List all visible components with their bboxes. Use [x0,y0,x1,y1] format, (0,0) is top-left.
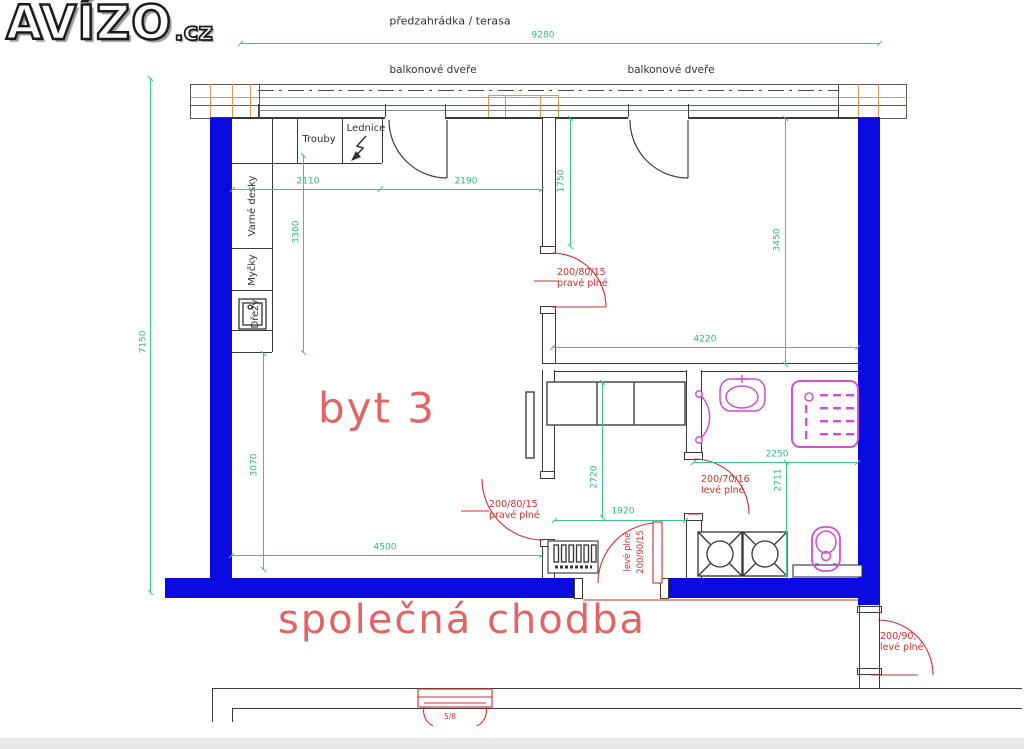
dim-line-hall-width [552,347,858,348]
toilet-icon [812,527,840,571]
dim-kitchen-left: 2110 [297,178,320,187]
corridor-passage-label: 5/8 [444,712,456,723]
dim-line-bath-width [693,462,858,463]
dim-hall-width: 4220 [694,336,717,345]
living-door-size: 200/80/15 [489,500,540,511]
apartment-label: byt 3 [318,384,436,433]
dim-kitchen-depth: 3300 [293,221,302,244]
dim-kitchen-right: 2190 [455,178,478,187]
radiator-narrow-symbol [526,392,534,458]
dim-right-wing: 3450 [774,229,783,252]
bed-symbol [547,382,685,425]
dim-bath-width: 2250 [766,451,789,460]
logo-suffix-text: .cz [174,19,213,47]
dim-line-right-wing [785,118,786,365]
dim-line-hall-entry [570,118,571,247]
balcony-door-swings [389,120,688,178]
dim-bedroom-width: 1920 [612,508,635,517]
living-door-type: pravé plné [489,511,540,522]
dim-overall-width: 9280 [532,32,555,41]
corridor-door-type: levé plné [880,643,924,654]
washbasin-icon [720,375,765,411]
dim-bath-depth: 2711 [775,469,784,492]
logo-text: AVÍZO [6,2,172,47]
entry-door-leaf [653,522,662,583]
towel-radiator-icon [696,391,710,443]
dim-line-bath-depth [786,462,787,577]
shower-tray-icon [792,381,858,447]
avizo-logo: AVÍZO .cz [6,2,213,47]
dim-overall-height: 7150 [140,331,149,354]
furniture-symbols [239,136,862,577]
bath-door-label: 200/70/16 levé plné [701,475,750,496]
fridge-power-icon [351,136,366,161]
hall-door-label: 200/80/15 pravé plné [557,268,608,289]
washing-machine-icon [743,532,787,576]
dim-line-bedroom-depth [602,382,603,518]
balcony-door-left-arc [389,120,447,178]
dim-line-overall-width [240,43,880,44]
corridor-door-size: 200/90, [880,632,924,643]
balcony-door-right-arc [630,120,688,178]
dim-line-bedroom-width [554,520,686,521]
dim-living-left: 3070 [251,454,260,477]
entry-door-type: levé plné [623,533,634,572]
dim-line-living-width [231,555,542,556]
living-door-label: 200/80/15 pravé plné [489,500,540,521]
dim-line-kitchen [232,189,542,190]
dim-hall-entry: 1750 [558,170,567,193]
dim-line-overall-height [150,78,151,593]
bath-door-size: 200/70/16 [701,475,750,486]
door-swing-annotations [418,253,933,726]
dim-bedroom-depth: 2720 [591,466,600,489]
corridor-door-label: 200/90, levé plné [880,632,924,653]
dim-living-width: 4500 [374,544,397,553]
washing-machine-icon [698,532,742,576]
entry-door-size: 200/90/15 [636,530,647,574]
hall-door-size: 200/80/15 [557,268,608,279]
dim-line-living-left [263,353,264,570]
floor-plan-page: AVÍZO .cz předzahrádka / terasa balkonov… [0,0,1024,749]
bath-door-type: levé plné [701,486,750,497]
radiator-symbol [548,541,598,573]
corridor-label: společná chodba [278,597,646,643]
hall-door-type: pravé plné [557,279,608,290]
